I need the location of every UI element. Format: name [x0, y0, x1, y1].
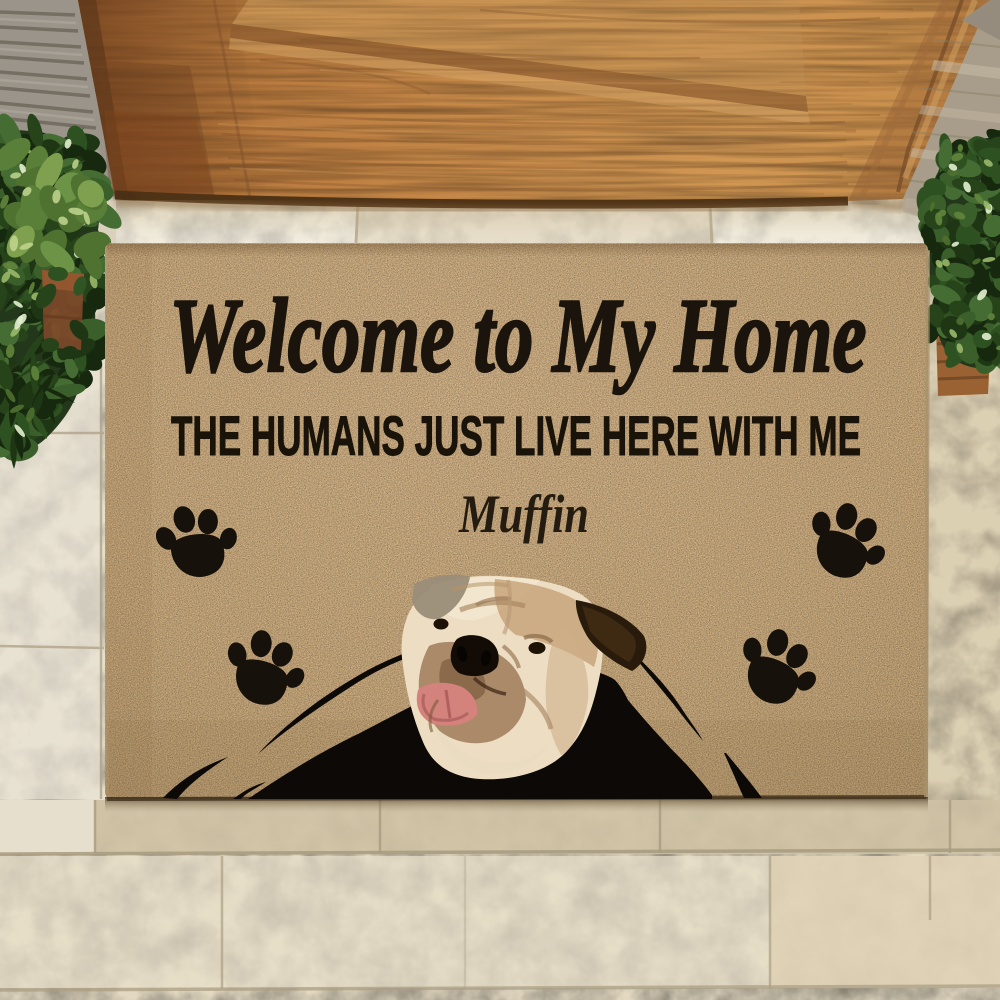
svg-text:THE HUMANS JUST LIVE HERE WITH: THE HUMANS JUST LIVE HERE WITH ME [171, 404, 861, 467]
svg-text:Welcome to My Home: Welcome to My Home [170, 277, 867, 394]
svg-text:Muffin: Muffin [458, 484, 589, 544]
